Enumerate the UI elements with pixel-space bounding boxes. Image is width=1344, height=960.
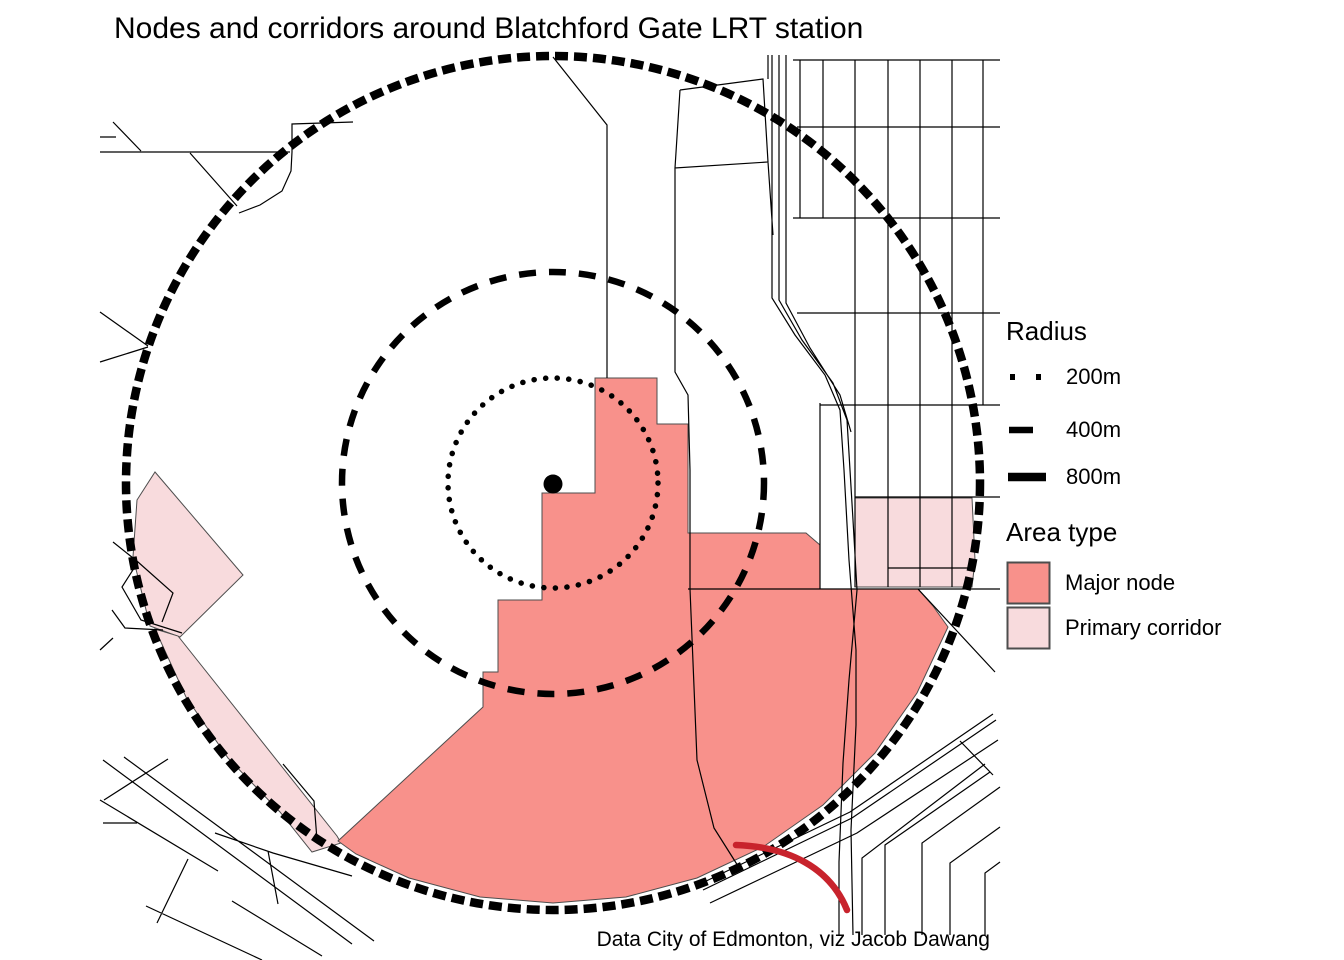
primary-corridor-swatch-icon xyxy=(1006,606,1051,650)
data-caption: Data City of Edmonton, viz Jacob Dawang xyxy=(597,928,990,952)
legend-radius-item-400m: 400m xyxy=(1006,415,1121,445)
map-canvas xyxy=(0,0,1344,960)
legend-radius-item-200m: 200m xyxy=(1006,362,1121,392)
legend-area-item-major-node: Major node xyxy=(1006,561,1175,605)
thick-line-key-icon xyxy=(1006,462,1052,492)
corridor-block-east xyxy=(855,498,975,587)
major-node-area xyxy=(338,378,948,903)
dotted-line-key-icon xyxy=(1006,362,1052,392)
page-title: Nodes and corridors around Blatchford Ga… xyxy=(114,12,863,46)
legend-area-type-title: Area type xyxy=(1006,517,1117,548)
lrt-track xyxy=(736,845,847,910)
legend-area-label: Primary corridor xyxy=(1065,615,1221,641)
legend-radius-label: 800m xyxy=(1066,464,1121,490)
legend-radius-label: 400m xyxy=(1066,417,1121,443)
station-dot xyxy=(544,475,563,494)
major-node-swatch-icon xyxy=(1006,561,1051,605)
dashed-line-key-icon xyxy=(1006,415,1052,445)
map-figure: Nodes and corridors around Blatchford Ga… xyxy=(0,0,1344,960)
legend-radius-item-800m: 800m xyxy=(1006,462,1121,492)
legend-area-label: Major node xyxy=(1065,570,1175,596)
legend-radius-title: Radius xyxy=(1006,316,1087,347)
legend-area-item-primary-corridor: Primary corridor xyxy=(1006,606,1221,650)
legend-radius-label: 200m xyxy=(1066,364,1121,390)
